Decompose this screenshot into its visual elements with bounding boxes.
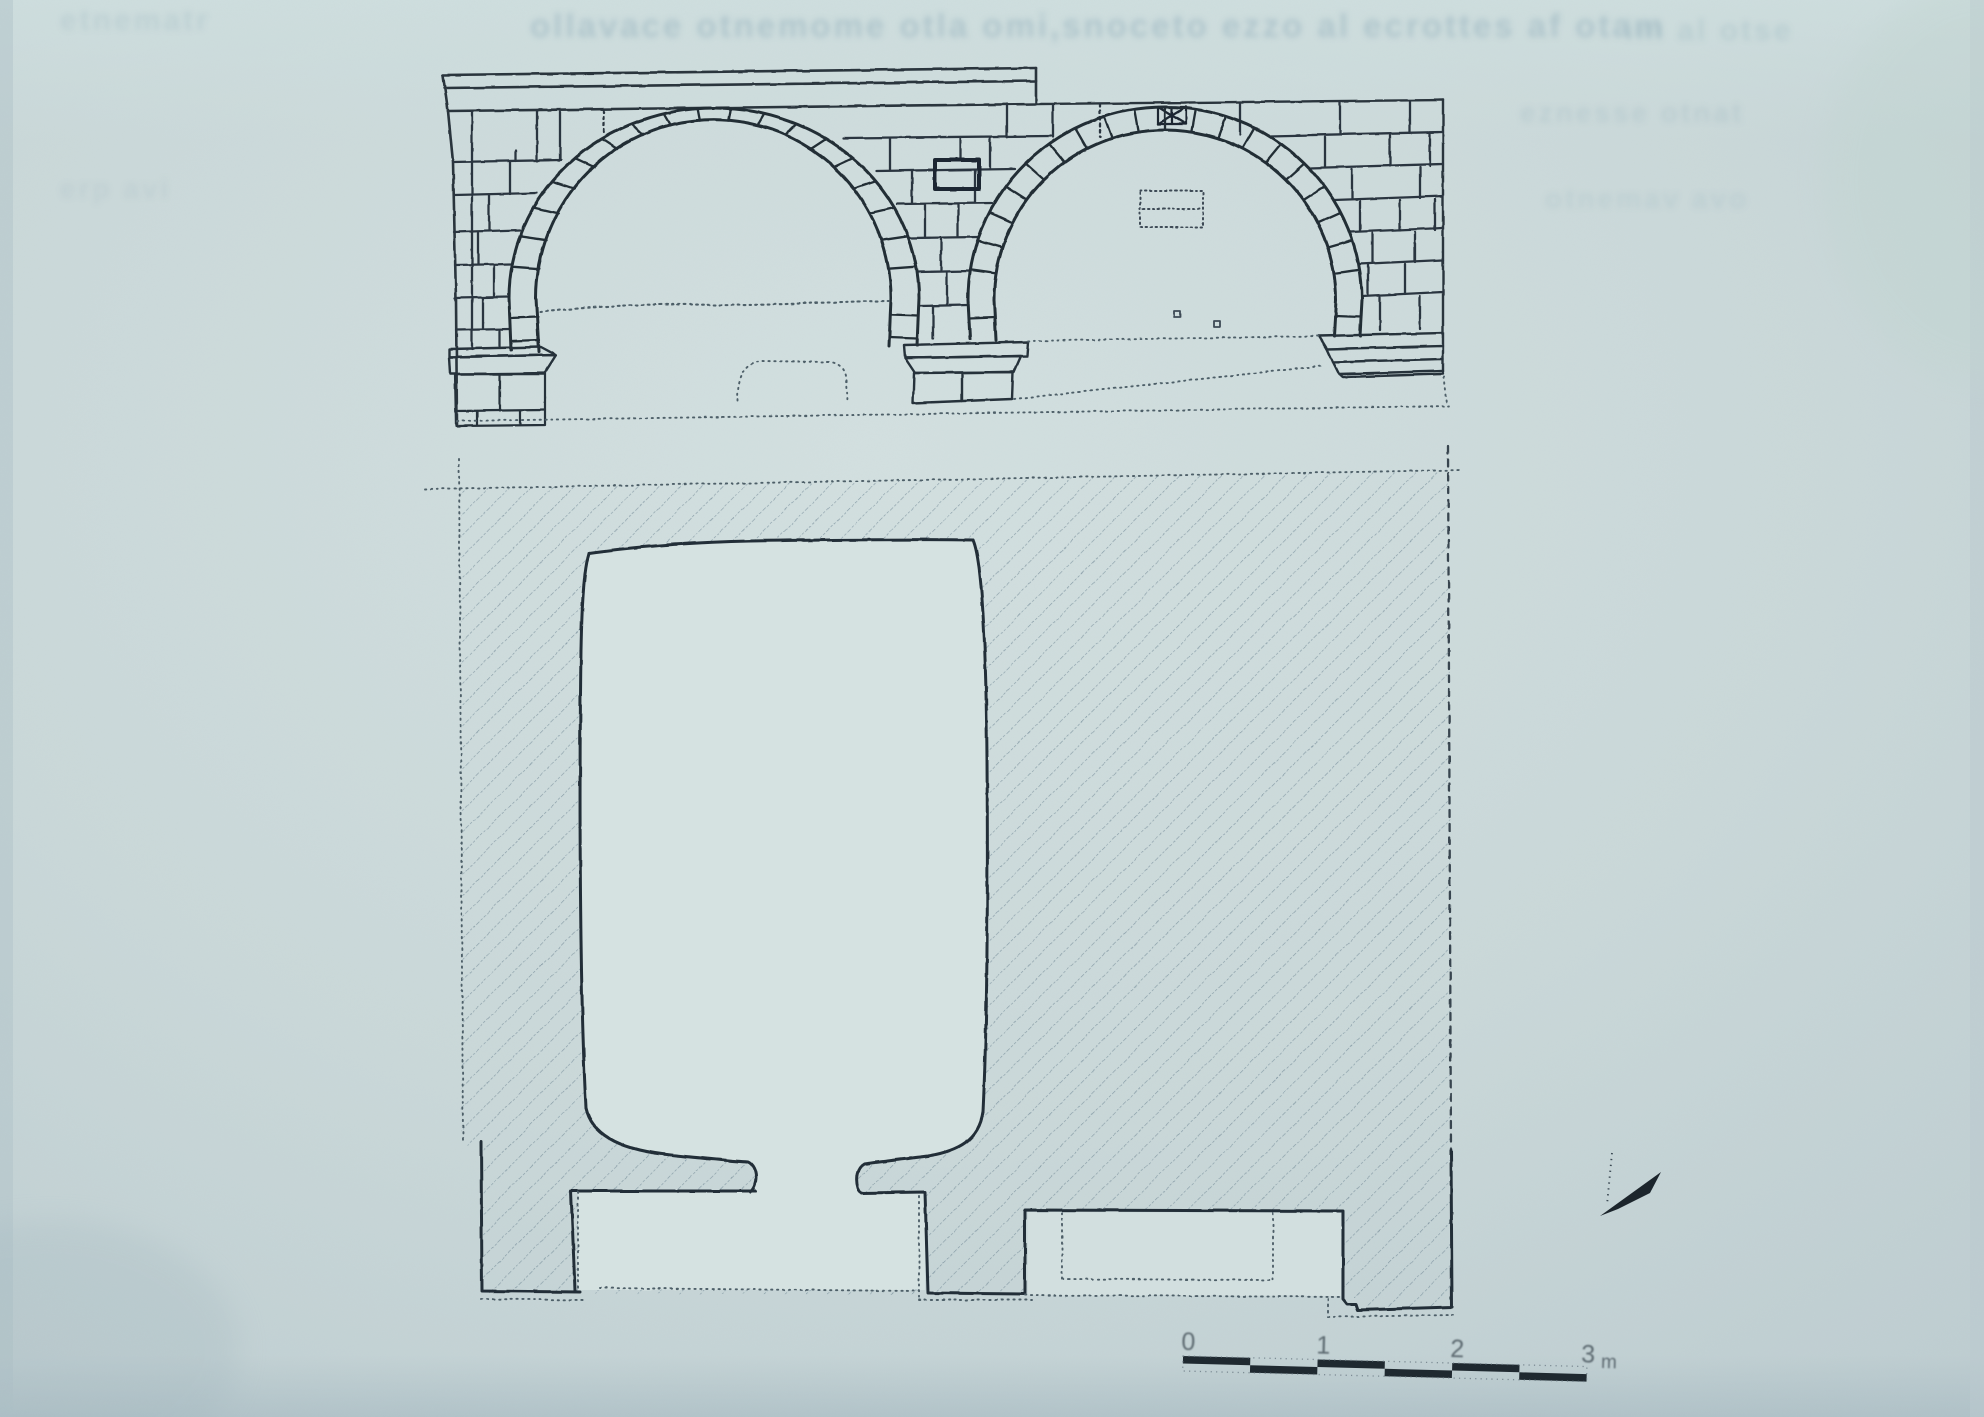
svg-text:otnemav avo: otnemav avo	[1545, 183, 1749, 214]
svg-text:m: m	[1601, 1352, 1617, 1373]
svg-text:2: 2	[1450, 1335, 1465, 1363]
svg-text:eznesse otnat: eznesse otnat	[1520, 97, 1744, 128]
svg-text:im al otse: im al otse	[1625, 14, 1793, 47]
svg-text:erp avi: erp avi	[60, 173, 171, 204]
svg-text:3: 3	[1581, 1340, 1596, 1368]
svg-text:0: 0	[1181, 1328, 1196, 1356]
svg-text:1: 1	[1316, 1331, 1331, 1359]
svg-text:ollavace otnemome otla omi,sno: ollavace otnemome otla omi,snoceto ezzo …	[530, 7, 1666, 44]
svg-text:etnematr: etnematr	[60, 4, 211, 37]
